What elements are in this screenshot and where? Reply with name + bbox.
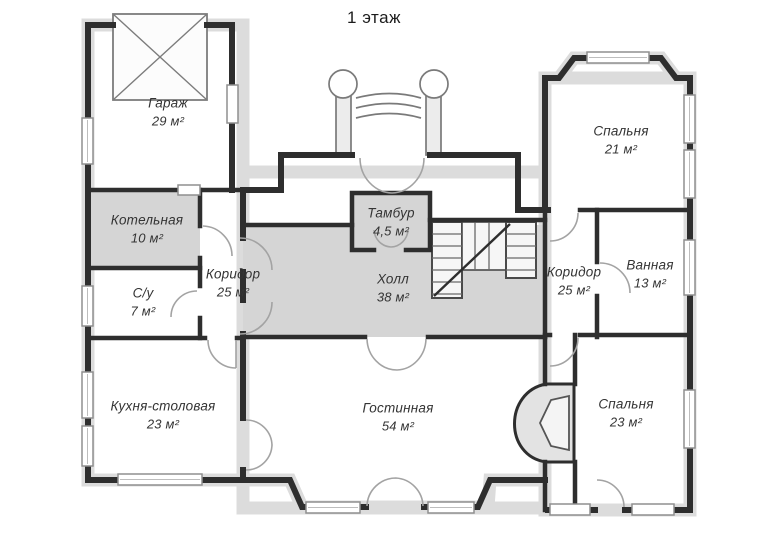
porch-column-right (420, 70, 448, 98)
room-fill-tambour (352, 193, 430, 250)
floor-plan-drawing (0, 0, 782, 542)
floor-title: 1 этаж (347, 8, 401, 28)
window (178, 185, 200, 195)
window (227, 85, 238, 123)
room-fill-boiler (88, 190, 200, 268)
garage-gate-x (113, 14, 207, 100)
floor-plan-page: 1 этаж Гараж 29 м² Котельная 10 м² С/у 7… (0, 0, 782, 542)
window (550, 504, 590, 515)
window (632, 504, 674, 515)
fireplace (515, 384, 575, 462)
porch-column-left (329, 70, 357, 98)
porch-steps (356, 94, 421, 119)
entrance-porch (329, 70, 448, 155)
